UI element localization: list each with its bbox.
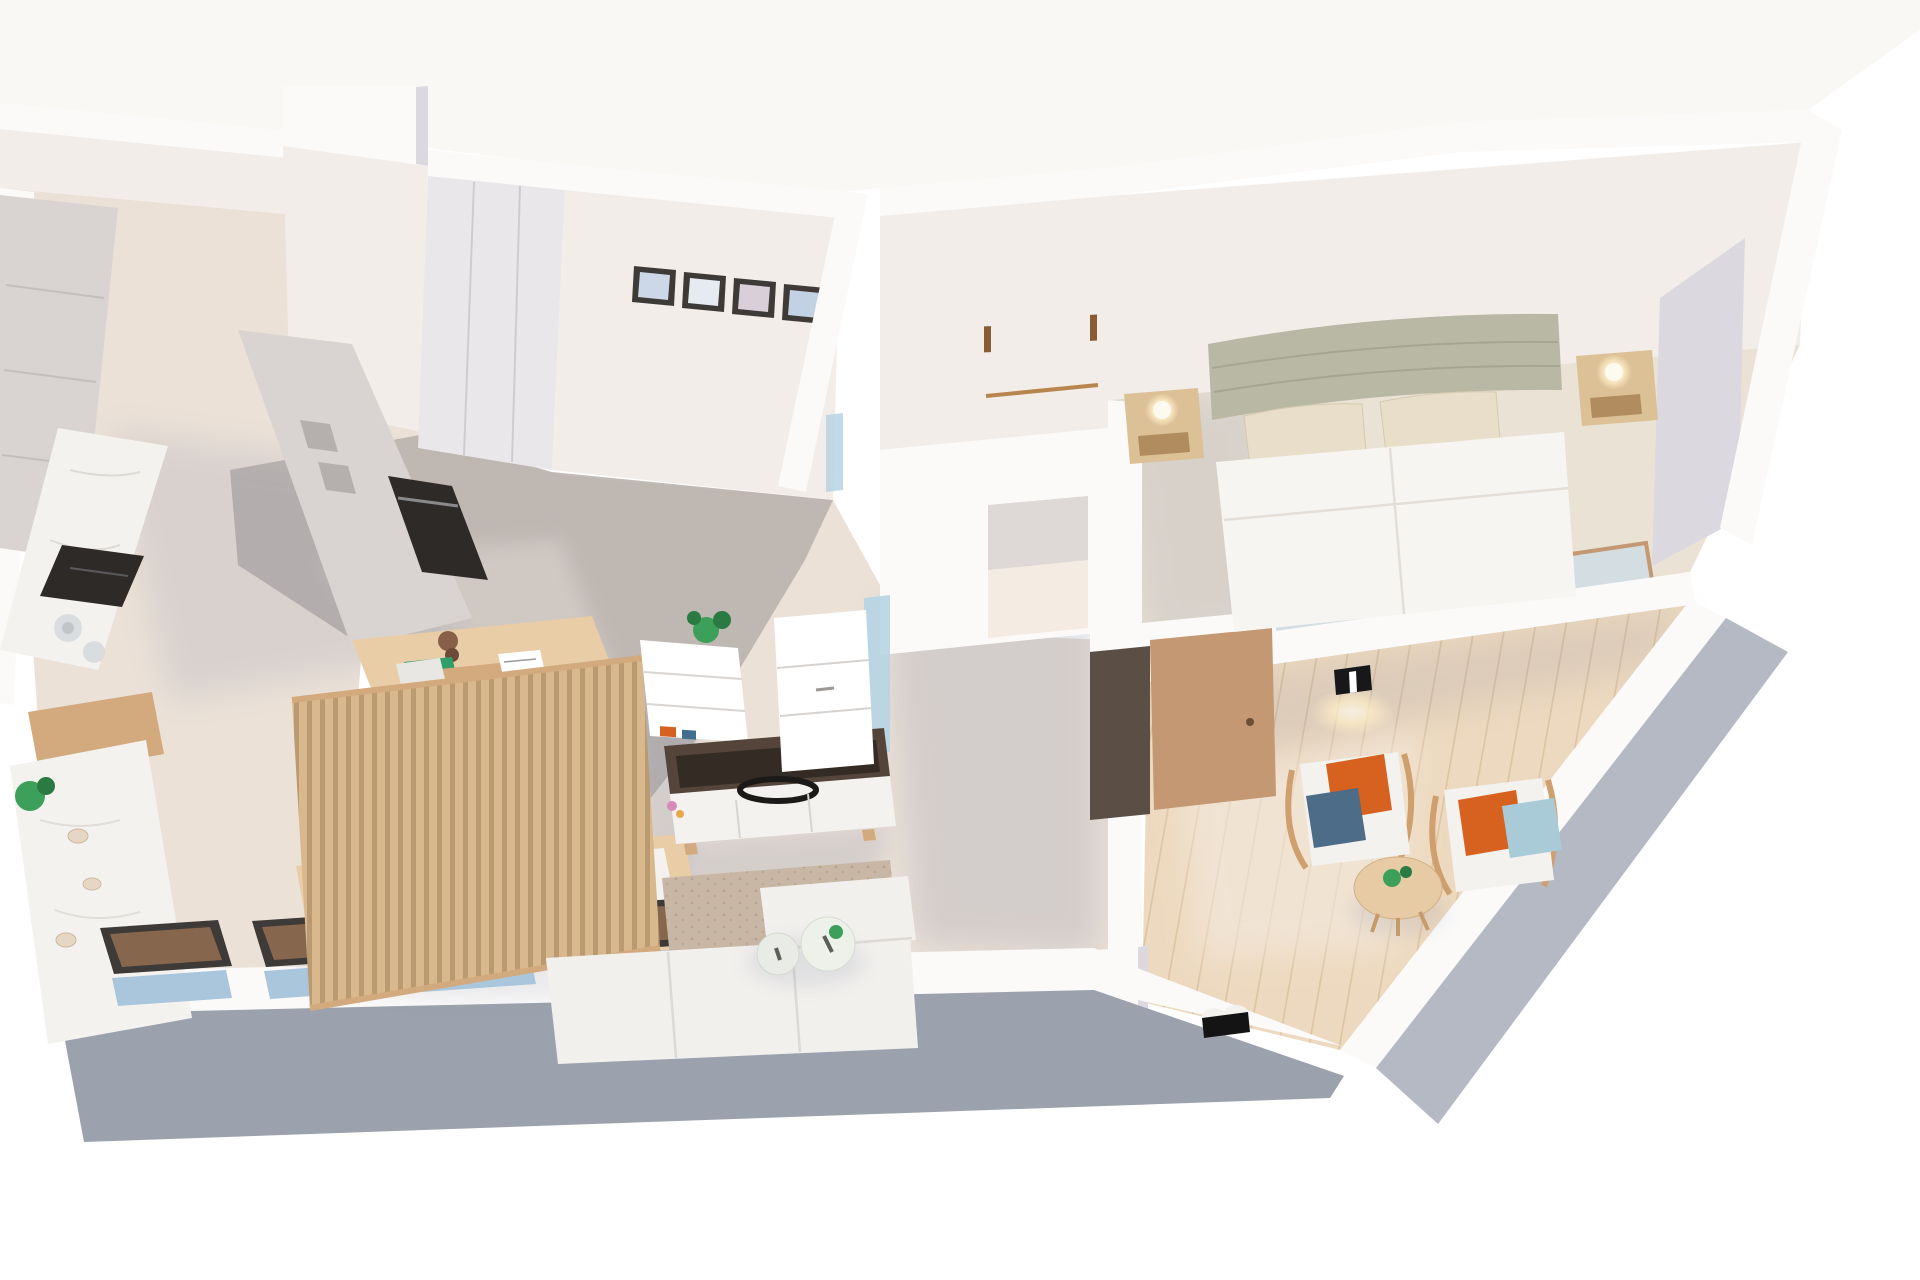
- entry-niche: [1090, 646, 1150, 820]
- office-wardrobe: [418, 176, 565, 470]
- slippers: [1202, 1005, 1250, 1038]
- apartment-3d-plan: [0, 0, 1920, 1280]
- wall-chimney-side: [416, 86, 428, 166]
- floor-plan-render: [0, 0, 1920, 1280]
- door-handle: [1246, 718, 1254, 726]
- throw-pillow-blue: [1306, 788, 1366, 848]
- hallway: [774, 610, 874, 772]
- shower-glass: [826, 413, 843, 492]
- entry-door-open: [1150, 628, 1276, 810]
- window: [100, 920, 232, 1006]
- bathroom-door-shadow: [988, 496, 1088, 570]
- round-side-table: [1350, 857, 1446, 936]
- floating-nightstand: [1124, 388, 1204, 464]
- table-plant: [829, 925, 843, 939]
- throw-pillow-sky: [1502, 798, 1562, 858]
- cabinet-handle: [816, 688, 834, 690]
- drawer-cabinet: [774, 610, 874, 772]
- wall-bathroom-face: [880, 196, 1108, 450]
- double-bed: [1208, 314, 1576, 632]
- floating-nightstand: [1576, 350, 1658, 426]
